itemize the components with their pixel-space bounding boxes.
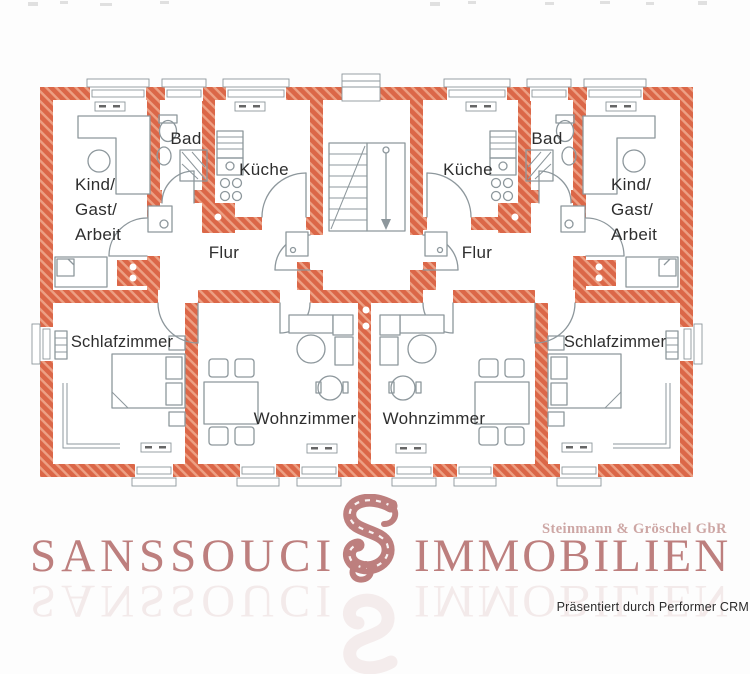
double-bed: [112, 354, 185, 408]
pillow: [57, 259, 74, 276]
label-wohnzimmer-left: Wohnzimmer: [254, 409, 357, 428]
window-bottom-wohn-right-2: [454, 463, 496, 486]
double-bed: [548, 354, 621, 408]
label-kind-right-2: Gast/: [611, 200, 653, 219]
window-left-schlaf: [32, 324, 54, 364]
window-bottom-wohn-left-2: [297, 463, 341, 486]
window-top-kind-right: [584, 79, 646, 101]
brand-ornament-reflection: [333, 584, 409, 674]
label-bad-left: Bad: [170, 129, 201, 148]
brand-sanssouci: SANSSOUCI: [30, 533, 336, 580]
window-top-bad-left: [162, 79, 206, 101]
window-top-bad-right: [527, 79, 571, 101]
brand-partner: Steinmann & Gröschel GbR: [542, 521, 727, 538]
label-kueche-right: Küche: [443, 160, 493, 179]
window-right-schlaf: [679, 324, 702, 364]
window-bottom-wohn-right-1: [392, 463, 436, 486]
window-bottom-schlaf-right: [557, 463, 601, 486]
label-bad-right: Bad: [531, 129, 562, 148]
window-top-kueche-right: [444, 79, 510, 101]
label-flur-right: Flur: [462, 243, 493, 262]
label-kind-right-3: Arbeit: [611, 225, 657, 244]
floorplan-drawing: Kind/ Gast/ Arbeit Kind/ Gast/ Arbeit Ba…: [0, 0, 750, 495]
pillow: [659, 259, 676, 276]
window-bottom-schlaf-left: [132, 463, 176, 486]
brand-ornament-icon: [333, 494, 409, 584]
label-wohnzimmer-right: Wohnzimmer: [383, 409, 486, 428]
label-kind-left-2: Gast/: [75, 200, 117, 219]
entrance-stoop: [342, 74, 380, 101]
label-schlafzimmer-right: Schlafzimmer: [564, 333, 667, 351]
window-top-kueche-left: [223, 79, 289, 101]
dining-table: [204, 382, 258, 424]
brand-immobilien: IMMOBILIEN: [414, 533, 731, 580]
label-kind-left-3: Arbeit: [75, 225, 121, 244]
label-schlafzimmer-left: Schlafzimmer: [71, 333, 174, 351]
window-bottom-wohn-left-1: [237, 463, 279, 486]
label-flur-left: Flur: [209, 243, 240, 262]
label-kind-left-1: Kind/: [75, 175, 115, 194]
window-top-kind-left: [87, 79, 149, 101]
brand-sanssouci-reflection: SANSSOUCI: [30, 577, 336, 624]
label-kueche-left: Küche: [239, 160, 289, 179]
label-kind-right-1: Kind/: [611, 175, 651, 194]
footer-credit: Präsentiert durch Performer CRM: [557, 600, 749, 614]
scan-noise: [28, 1, 707, 6]
